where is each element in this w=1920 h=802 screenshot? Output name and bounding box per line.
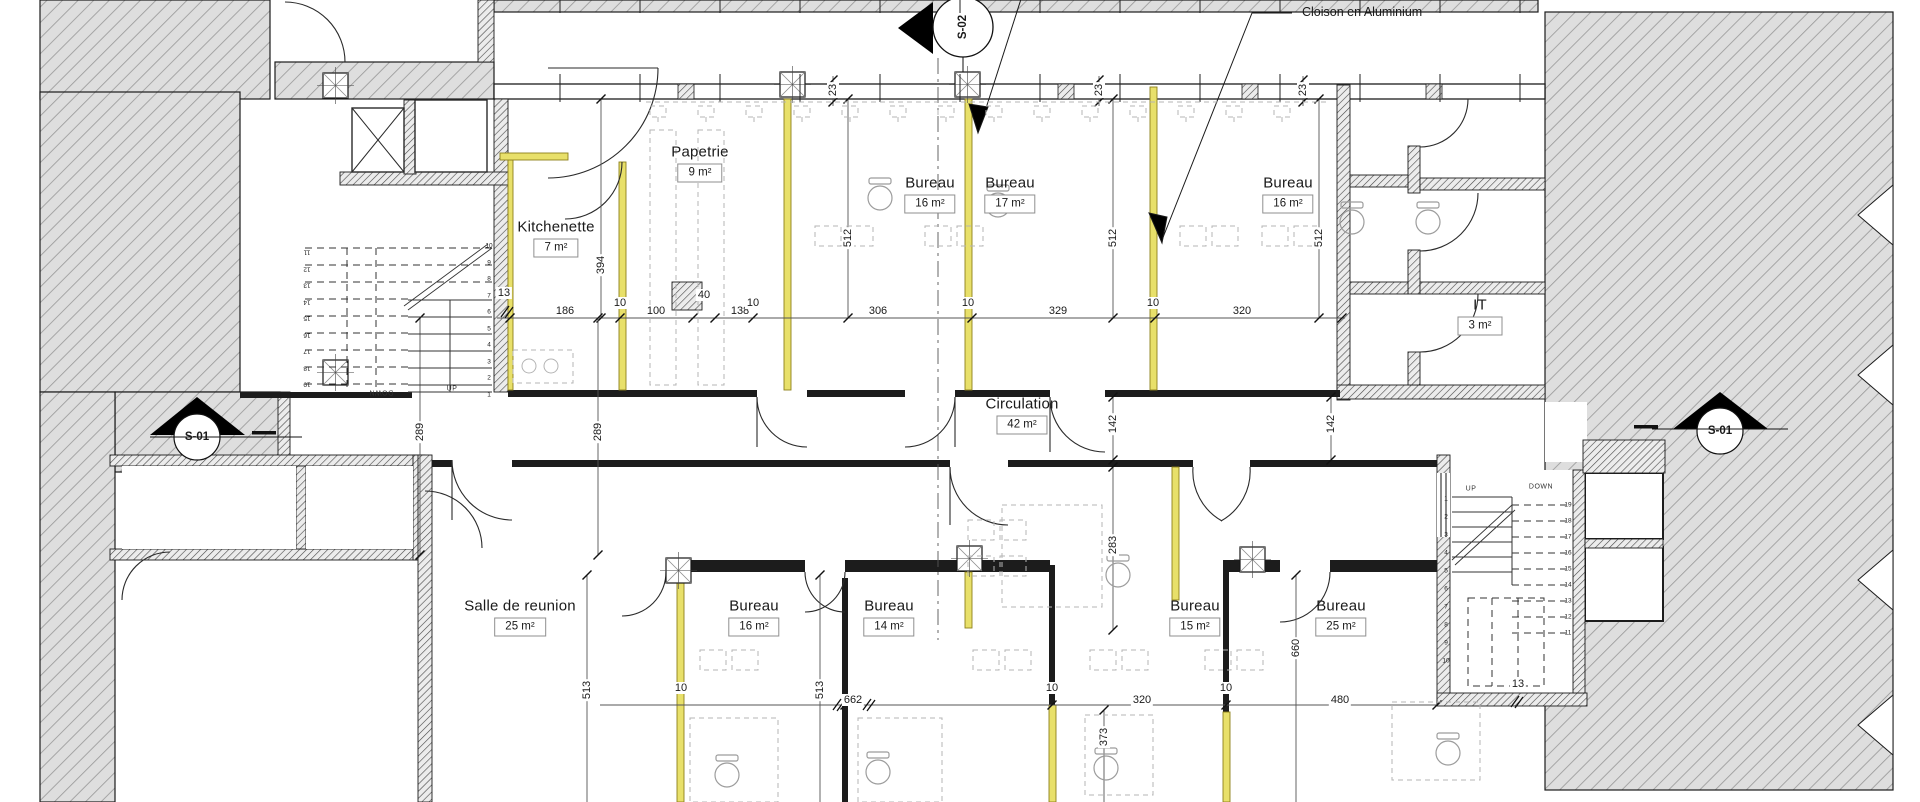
stair-step-number: 4	[487, 342, 491, 349]
room-area-badge: 25 m²	[494, 618, 545, 637]
dimension-label: 23	[1297, 82, 1309, 98]
room-label: Bureau 14 m²	[863, 598, 914, 637]
room-name: Papetrie	[671, 144, 728, 161]
dimension-label: 10	[1218, 682, 1234, 694]
stair-step-number: 18	[303, 364, 310, 371]
room-area-badge: 16 m²	[728, 618, 779, 637]
room-name: Salle de reunion	[464, 598, 576, 615]
dimension-label: 289	[592, 421, 604, 443]
stair-down-label: DOWN	[1529, 484, 1553, 491]
storage-room-interiors	[122, 466, 413, 549]
stair-step-number: 5	[487, 325, 491, 332]
room-label: Bureau 15 m²	[1169, 598, 1220, 637]
room-label: Circulation 42 m²	[985, 396, 1058, 435]
stair-step-number: 13	[1564, 598, 1571, 605]
stair-up-label: UP	[447, 386, 458, 393]
dimension-label: 10	[960, 297, 976, 309]
stair-step-number: 11	[304, 249, 311, 256]
room-area-badge: 15 m²	[1169, 618, 1220, 637]
room-name: Bureau	[1316, 598, 1366, 615]
room-area-badge: 3 m²	[1458, 317, 1503, 336]
room-label: Papetrie 9 m²	[671, 144, 728, 183]
dimension-label: 662	[842, 694, 864, 706]
stair-step-number: 5	[1444, 568, 1448, 575]
stair-step-number: 12	[1564, 614, 1571, 621]
stair-step-number: 6	[1444, 586, 1448, 593]
hatched-walls	[110, 0, 1665, 802]
dimension-label: 23	[1093, 82, 1105, 98]
room-label: Salle de reunion 25 m²	[464, 598, 576, 637]
plan-drawing	[0, 0, 1920, 802]
room-name: Bureau	[1170, 598, 1220, 615]
dimension-label: 513	[814, 679, 826, 701]
annotation-cloison: Cloison en Aluminium	[1302, 5, 1422, 19]
room-name: Bureau	[729, 598, 779, 615]
room-area-badge: 25 m²	[1315, 618, 1366, 637]
stair-step-number: 12	[303, 265, 310, 272]
stair-down-label: DOWN	[369, 389, 393, 396]
dimension-label: 373	[1098, 726, 1110, 748]
section-marker-label: S-01	[1708, 425, 1732, 437]
room-label: Bureau 16 m²	[904, 175, 955, 214]
room-name: Bureau	[864, 598, 914, 615]
stair-step-number: 7	[487, 292, 491, 299]
section-marker-label: S-01	[185, 431, 209, 443]
dimension-label: 186	[554, 305, 576, 317]
room-area-badge: 9 m²	[677, 164, 722, 183]
room-area-badge: 17 m²	[984, 195, 1035, 214]
stair-step-number: 2	[487, 375, 491, 382]
stair-step-number: 15	[1564, 566, 1571, 573]
dimension-label: 10	[1145, 297, 1161, 309]
dimension-label: 13	[1510, 678, 1526, 690]
dimension-label: 513	[581, 679, 593, 701]
room-area-badge: 14 m²	[863, 618, 914, 637]
stair-step-number: 16	[303, 331, 310, 338]
stair-step-number: 14	[1564, 582, 1571, 589]
elevator-shaft	[352, 100, 487, 172]
room-name: IT	[1473, 297, 1487, 314]
stair-step-number: 17	[303, 348, 310, 355]
dimension-breaks	[501, 306, 1523, 711]
dimension-label: 13	[496, 287, 512, 299]
stair-step-number: 3	[1444, 532, 1448, 539]
room-area-badge: 16 m²	[904, 195, 955, 214]
dimension-label: 142	[1325, 413, 1337, 435]
room-name: Circulation	[985, 396, 1058, 413]
dimension-label: 306	[867, 305, 889, 317]
dimension-label: 100	[645, 305, 667, 317]
stair-step-number: 18	[1564, 518, 1571, 525]
room-label: Bureau 25 m²	[1315, 598, 1366, 637]
stair-step-number: 8	[1444, 622, 1448, 629]
room-name: Kitchenette	[517, 219, 594, 236]
dimension-label: 283	[1107, 534, 1119, 556]
dimension-label: 320	[1131, 694, 1153, 706]
dimension-label: 512	[1313, 227, 1325, 249]
stair-step-number: 8	[487, 276, 491, 283]
dimension-label: 10	[1044, 682, 1060, 694]
stair-step-number: 4	[1444, 550, 1448, 557]
room-name: Bureau	[985, 175, 1035, 192]
dimension-label: 329	[1047, 305, 1069, 317]
stair-step-number: 13	[303, 282, 310, 289]
stair-step-number: 15	[303, 315, 310, 322]
stair-step-number: 16	[1564, 550, 1571, 557]
dimension-label: 23	[827, 82, 839, 98]
room-label: Bureau 17 m²	[984, 175, 1035, 214]
dimension-label: 320	[1231, 305, 1253, 317]
stair-door-gap	[1437, 473, 1450, 537]
stair-step-number: 9	[1444, 640, 1448, 647]
dimension-label: 512	[1107, 227, 1119, 249]
stair-step-number: 9	[487, 259, 491, 266]
dimension-label: 10	[673, 682, 689, 694]
stair-step-number: 17	[1564, 534, 1571, 541]
room-label: Kitchenette 7 m²	[517, 219, 594, 258]
room-area-badge: 42 m²	[996, 416, 1047, 435]
room-name: Bureau	[1263, 175, 1313, 192]
room-label: IT 3 m²	[1458, 297, 1503, 336]
dimension-label: 142	[1107, 413, 1119, 435]
stair-step-number: 10	[1442, 658, 1449, 665]
aluminium-partitions	[500, 87, 1230, 802]
dimension-label: 10	[745, 297, 761, 309]
dimension-label: 289	[414, 421, 426, 443]
stair-step-number: 19	[303, 381, 310, 388]
dimension-label: 512	[842, 227, 854, 249]
stair-step-number: 3	[487, 358, 491, 365]
stair-step-number: 19	[1564, 502, 1571, 509]
room-label: Bureau 16 m²	[1262, 175, 1313, 214]
floor-plan-canvas: Cloison en Aluminium Papetrie 9 m² Kitch…	[0, 0, 1920, 802]
room-area-badge: 16 m²	[1262, 195, 1313, 214]
stair-step-number: 14	[303, 298, 310, 305]
dimension-label: 394	[595, 254, 607, 276]
stair-step-number: 1	[487, 391, 491, 398]
room-label: Bureau 16 m²	[728, 598, 779, 637]
top-wall-band	[494, 84, 1545, 99]
room-name: Bureau	[905, 175, 955, 192]
section-marker-label: S-02	[957, 15, 969, 39]
dimension-label: 10	[612, 297, 628, 309]
dimension-label: 660	[1290, 637, 1302, 659]
stair-up-label: UP	[1466, 486, 1477, 493]
dimension-label: 480	[1329, 694, 1351, 706]
stair-step-number: 7	[1444, 604, 1448, 611]
stair-step-number: 1	[1444, 496, 1448, 503]
stair-step-number: 2	[1444, 514, 1448, 521]
stair-step-number: 11	[1565, 630, 1572, 637]
room-area-badge: 7 m²	[533, 239, 578, 258]
stair-step-number: 6	[487, 309, 491, 316]
stair-step-number: 10	[485, 243, 492, 250]
dimension-label: 40	[696, 289, 712, 301]
